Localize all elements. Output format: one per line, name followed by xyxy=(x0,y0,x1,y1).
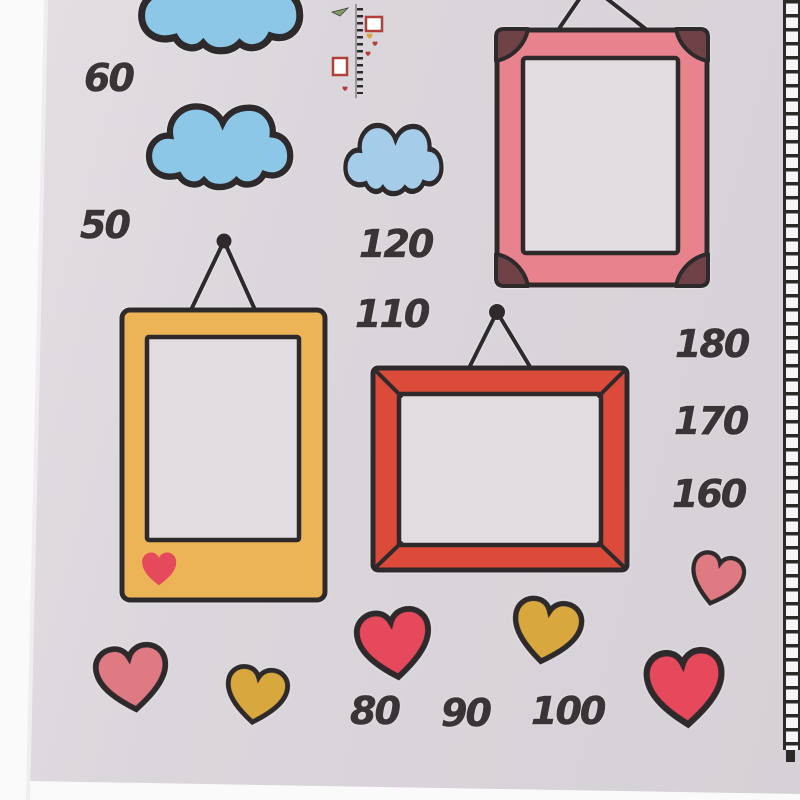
nail-dot xyxy=(217,234,232,249)
height-mark-50: 50 xyxy=(80,206,129,244)
height-mark-170: 170 xyxy=(674,402,747,440)
height-mark-90: 90 xyxy=(441,694,490,732)
frame-window xyxy=(399,394,601,545)
hanging-string xyxy=(497,312,532,370)
cloud-icon xyxy=(136,0,304,62)
ruler-ladder-strip xyxy=(783,0,800,750)
height-mark-100: 100 xyxy=(531,692,604,730)
growth-chart-product-photo: 60 50 120 110 180 170 160 80 90 100 xyxy=(0,0,800,800)
heart-icon xyxy=(217,659,295,732)
cloud-icon xyxy=(144,100,294,197)
hanging-string xyxy=(606,0,647,30)
height-mark-120: 120 xyxy=(359,225,432,263)
paper-plane-icon xyxy=(332,8,348,16)
heart-icon xyxy=(637,642,732,735)
mini-heart-icon xyxy=(365,51,370,56)
mini-heart-icon xyxy=(367,33,373,38)
mini-heart-icon xyxy=(342,86,347,91)
pink-frame-sticker xyxy=(480,0,720,300)
mini-frame-icon xyxy=(366,17,382,31)
height-mark-180: 180 xyxy=(675,325,748,363)
mini-growth-chart-graphic xyxy=(318,2,398,102)
heart-icon xyxy=(501,590,590,674)
height-mark-160: 160 xyxy=(672,475,745,513)
cloud-icon xyxy=(342,120,444,202)
height-mark-110: 110 xyxy=(355,295,428,333)
yellow-polaroid-sticker xyxy=(110,230,340,610)
frame-window xyxy=(147,337,299,540)
height-mark-60: 60 xyxy=(84,59,133,97)
hanging-string xyxy=(224,241,256,312)
heart-icon xyxy=(86,637,178,722)
red-frame-sticker xyxy=(362,300,642,580)
nail-dot xyxy=(489,304,505,320)
mini-heart-icon xyxy=(372,41,377,46)
heart-icon xyxy=(347,601,441,690)
hanging-string xyxy=(468,312,497,370)
hanging-string xyxy=(190,241,224,312)
ruler-ladder-end xyxy=(786,750,795,762)
mini-frame-icon xyxy=(333,58,347,75)
height-mark-80: 80 xyxy=(350,692,399,730)
frame-window xyxy=(523,58,678,253)
